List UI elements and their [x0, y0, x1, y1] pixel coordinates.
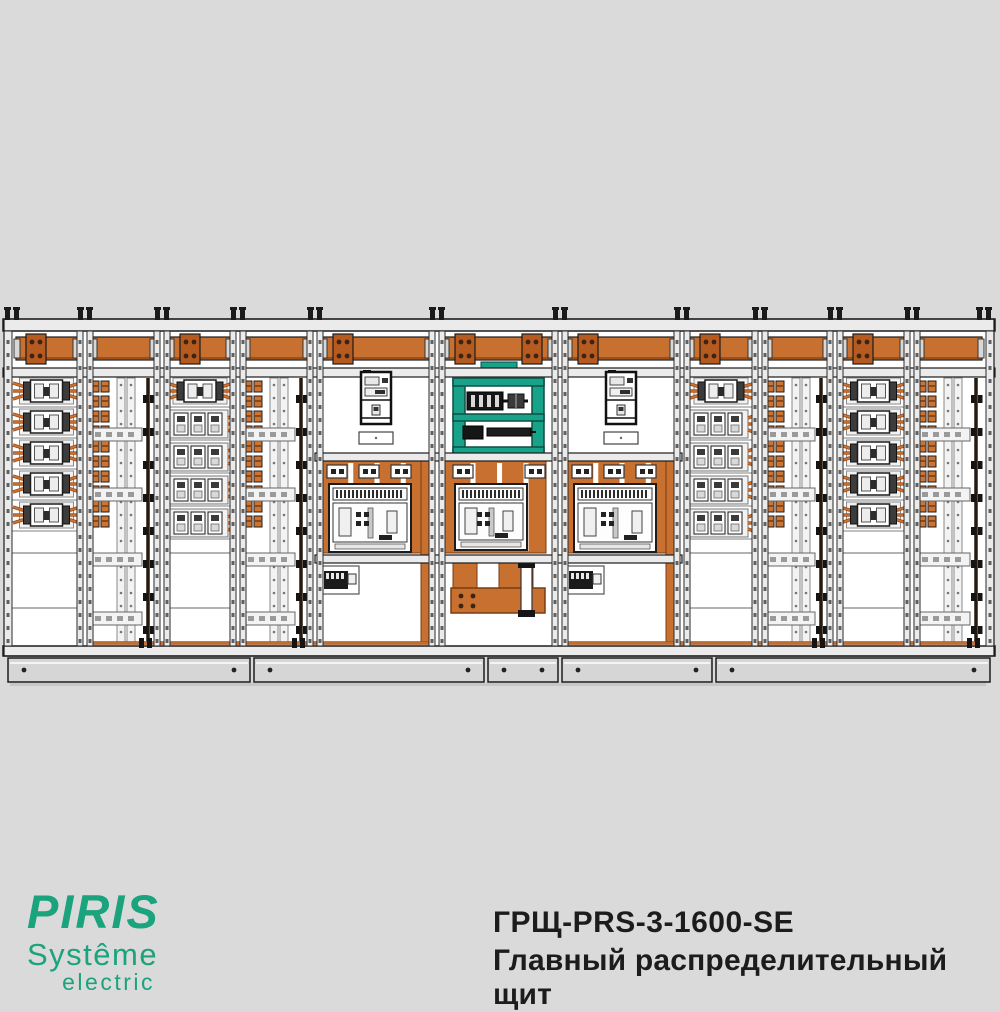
- product-title-block: ГРЩ-PRS-3-1600-SE Главный распределитель…: [493, 906, 1000, 1012]
- brand-line-electric: electric: [27, 971, 155, 994]
- brand-line-systeme: Systême: [27, 939, 187, 970]
- product-card: PIRIS Systême electric ГРЩ-PRS-3-1600-SE…: [0, 0, 1000, 1000]
- switchboard-front-view: [0, 0, 1000, 1000]
- product-model: ГРЩ-PRS-3-1600-SE: [493, 906, 1000, 940]
- product-subtitle: Главный распределительный щит: [493, 944, 1000, 1012]
- brand-logo: PIRIS Systême electric: [27, 888, 187, 994]
- switchboard-drawing: [0, 0, 1000, 1000]
- brand-name: PIRIS: [27, 888, 187, 935]
- plinth: [8, 658, 990, 686]
